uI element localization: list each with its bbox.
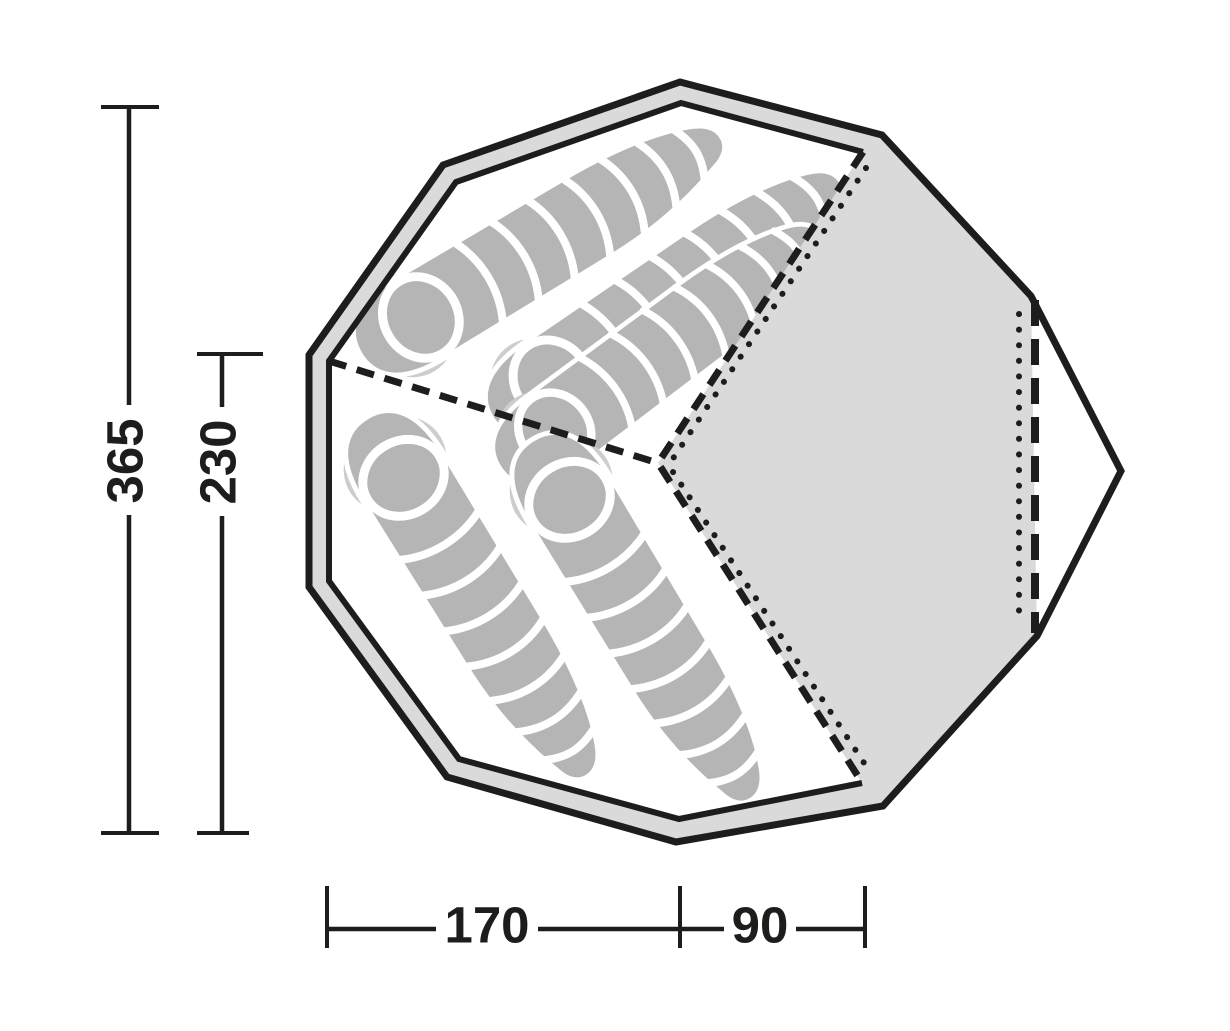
dimension-bottom-widths: 170 90 — [327, 886, 865, 954]
dimension-label-porch-width: 90 — [732, 897, 789, 954]
dimension-label-inner-depth: 230 — [190, 419, 247, 504]
tent-floorplan-diagram: 365 230 170 90 — [0, 0, 1230, 1031]
dimension-label-total-depth: 365 — [97, 418, 154, 503]
dimension-label-floor-width: 170 — [444, 897, 529, 954]
dimension-total-depth: 365 — [97, 107, 160, 833]
dimension-inner-depth: 230 — [190, 354, 264, 833]
door-opening-area — [1031, 296, 1121, 636]
tent-floorplan-svg: 365 230 170 90 — [0, 0, 1230, 1031]
